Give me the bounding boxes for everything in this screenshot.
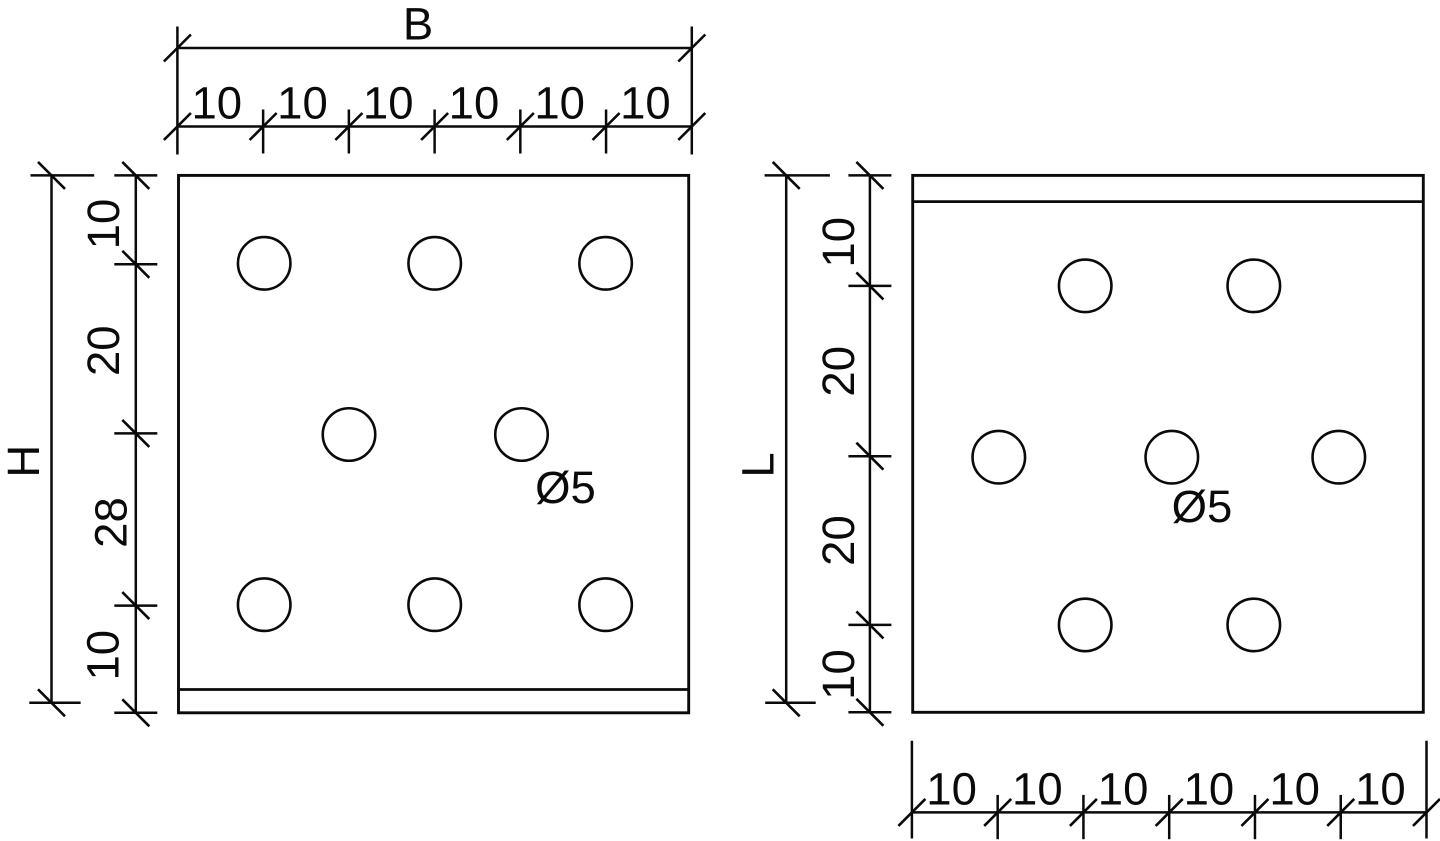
svg-text:10: 10 (78, 199, 129, 250)
svg-text:B: B (403, 0, 433, 50)
svg-text:10: 10 (1098, 763, 1149, 814)
svg-text:10: 10 (449, 78, 500, 129)
svg-text:L: L (733, 452, 784, 477)
svg-text:20: 20 (78, 325, 129, 376)
svg-text:Ø5: Ø5 (1172, 481, 1233, 532)
svg-text:20: 20 (813, 515, 864, 566)
svg-text:28: 28 (85, 497, 136, 548)
svg-text:20: 20 (813, 346, 864, 397)
svg-text:10: 10 (78, 630, 129, 681)
svg-text:10: 10 (620, 78, 671, 129)
svg-text:10: 10 (813, 649, 864, 700)
svg-text:10: 10 (926, 763, 977, 814)
svg-text:Ø5: Ø5 (535, 462, 596, 513)
svg-text:10: 10 (1184, 763, 1235, 814)
svg-text:10: 10 (1355, 763, 1406, 814)
svg-text:10: 10 (1269, 763, 1320, 814)
svg-text:H: H (0, 445, 49, 478)
svg-text:10: 10 (813, 217, 864, 268)
svg-text:10: 10 (191, 78, 242, 129)
svg-text:10: 10 (363, 78, 414, 129)
svg-text:10: 10 (277, 78, 328, 129)
svg-text:10: 10 (1012, 763, 1063, 814)
svg-text:10: 10 (534, 78, 585, 129)
